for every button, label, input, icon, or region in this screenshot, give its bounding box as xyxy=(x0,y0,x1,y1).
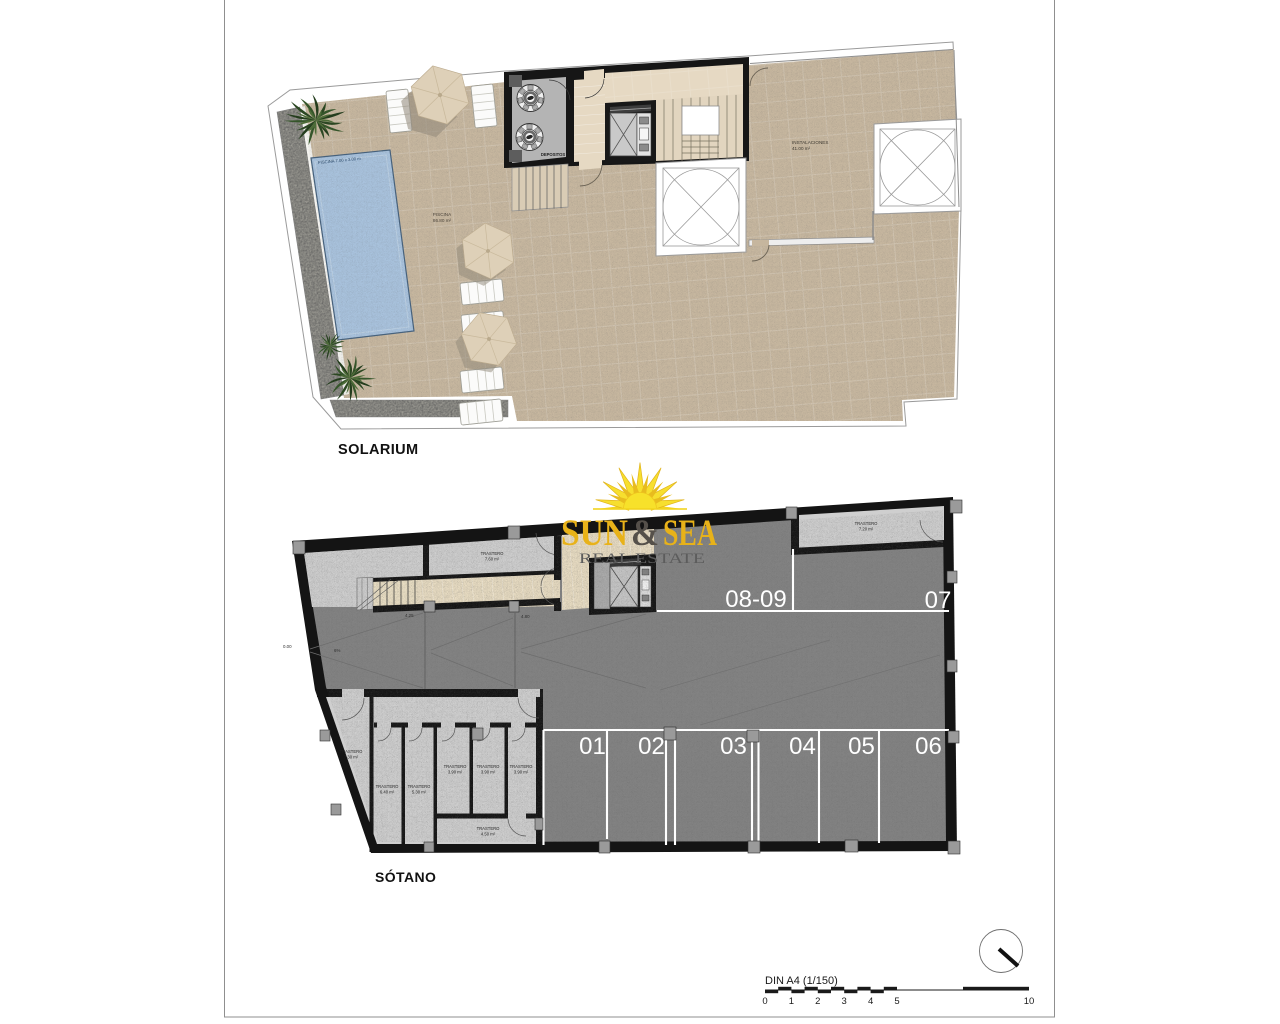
svg-text:07: 07 xyxy=(925,587,952,614)
svg-text:DEPOSITOS: DEPOSITOS xyxy=(541,152,566,157)
svg-text:41.00 m²: 41.00 m² xyxy=(792,146,811,151)
svg-text:03: 03 xyxy=(720,733,747,760)
svg-text:05: 05 xyxy=(848,733,875,760)
svg-text:SÓTANO: SÓTANO xyxy=(375,868,436,885)
svg-text:4.25: 4.25 xyxy=(405,613,414,618)
svg-text:1: 1 xyxy=(789,996,794,1007)
svg-text:INSTALACIONES: INSTALACIONES xyxy=(792,140,828,145)
svg-text:4.80: 4.80 xyxy=(521,614,530,619)
svg-text:SOLARIUM: SOLARIUM xyxy=(338,442,419,458)
svg-text:08-09: 08-09 xyxy=(725,586,786,613)
svg-text:02: 02 xyxy=(638,733,665,760)
svg-text:4: 4 xyxy=(868,996,873,1007)
svg-text:3: 3 xyxy=(842,996,847,1007)
svg-text:06: 06 xyxy=(915,733,942,760)
svg-text:01: 01 xyxy=(579,733,606,760)
svg-text:2: 2 xyxy=(815,996,820,1007)
svg-text:04: 04 xyxy=(789,733,816,760)
svg-text:0: 0 xyxy=(762,996,767,1007)
svg-text:SEA: SEA xyxy=(663,513,717,554)
svg-text:0.00: 0.00 xyxy=(283,644,292,649)
svg-text:&: & xyxy=(631,513,659,554)
svg-text:SUN: SUN xyxy=(561,513,628,554)
svg-text:5: 5 xyxy=(894,996,899,1007)
svg-text:DIN A4 (1/150): DIN A4 (1/150) xyxy=(765,975,838,987)
svg-text:6%: 6% xyxy=(334,648,340,653)
svg-text:REAL ESTATE: REAL ESTATE xyxy=(579,551,705,567)
svg-text:10: 10 xyxy=(1024,996,1035,1007)
